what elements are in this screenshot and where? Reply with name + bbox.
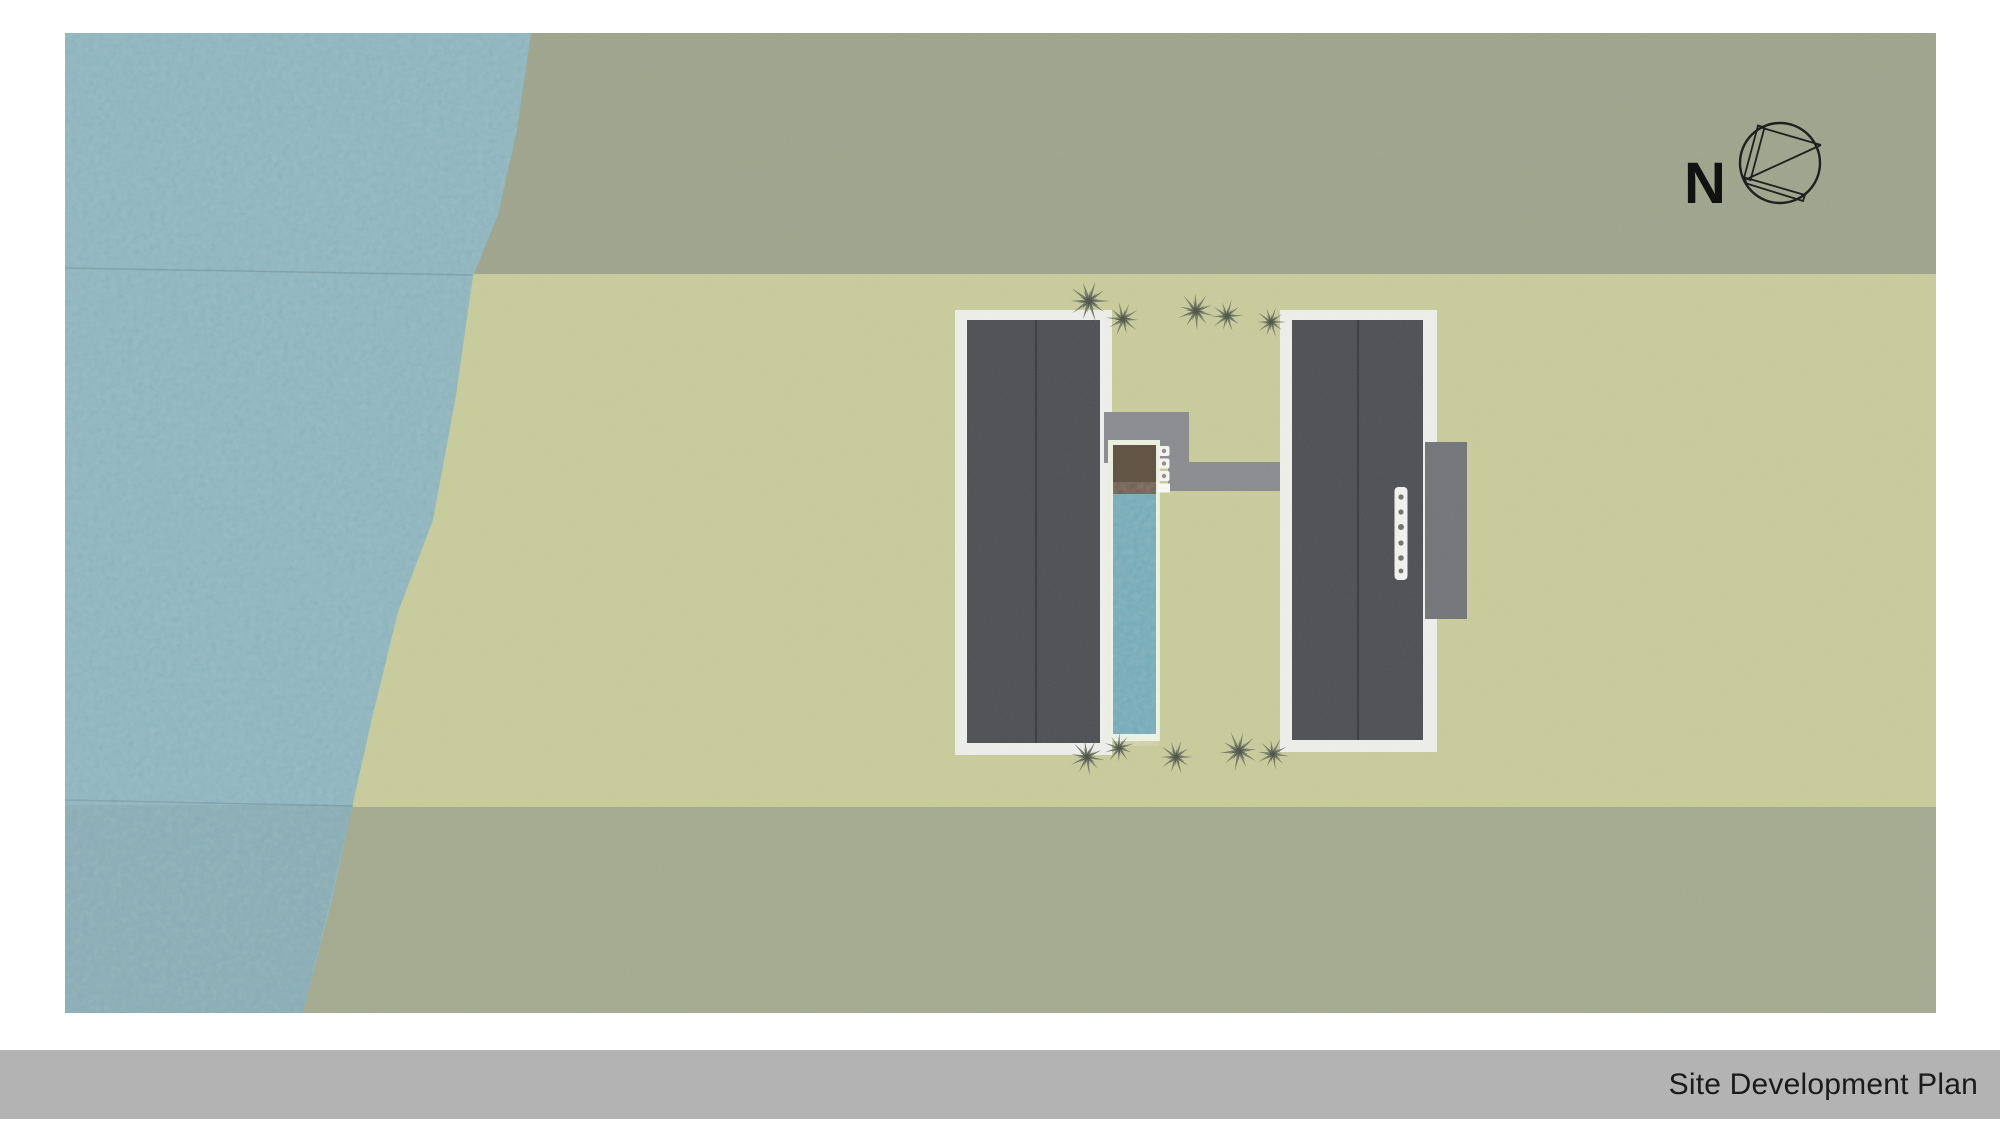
plan-title: Site Development Plan: [1669, 1068, 1978, 1102]
title-bar: Site Development Plan: [0, 1050, 2000, 1119]
slide: N Site Development Plan: [0, 0, 2000, 1125]
north-label: N: [1684, 151, 1726, 216]
site-plan-drawing: N: [0, 0, 2000, 1125]
paper-grain: [65, 33, 1936, 1013]
